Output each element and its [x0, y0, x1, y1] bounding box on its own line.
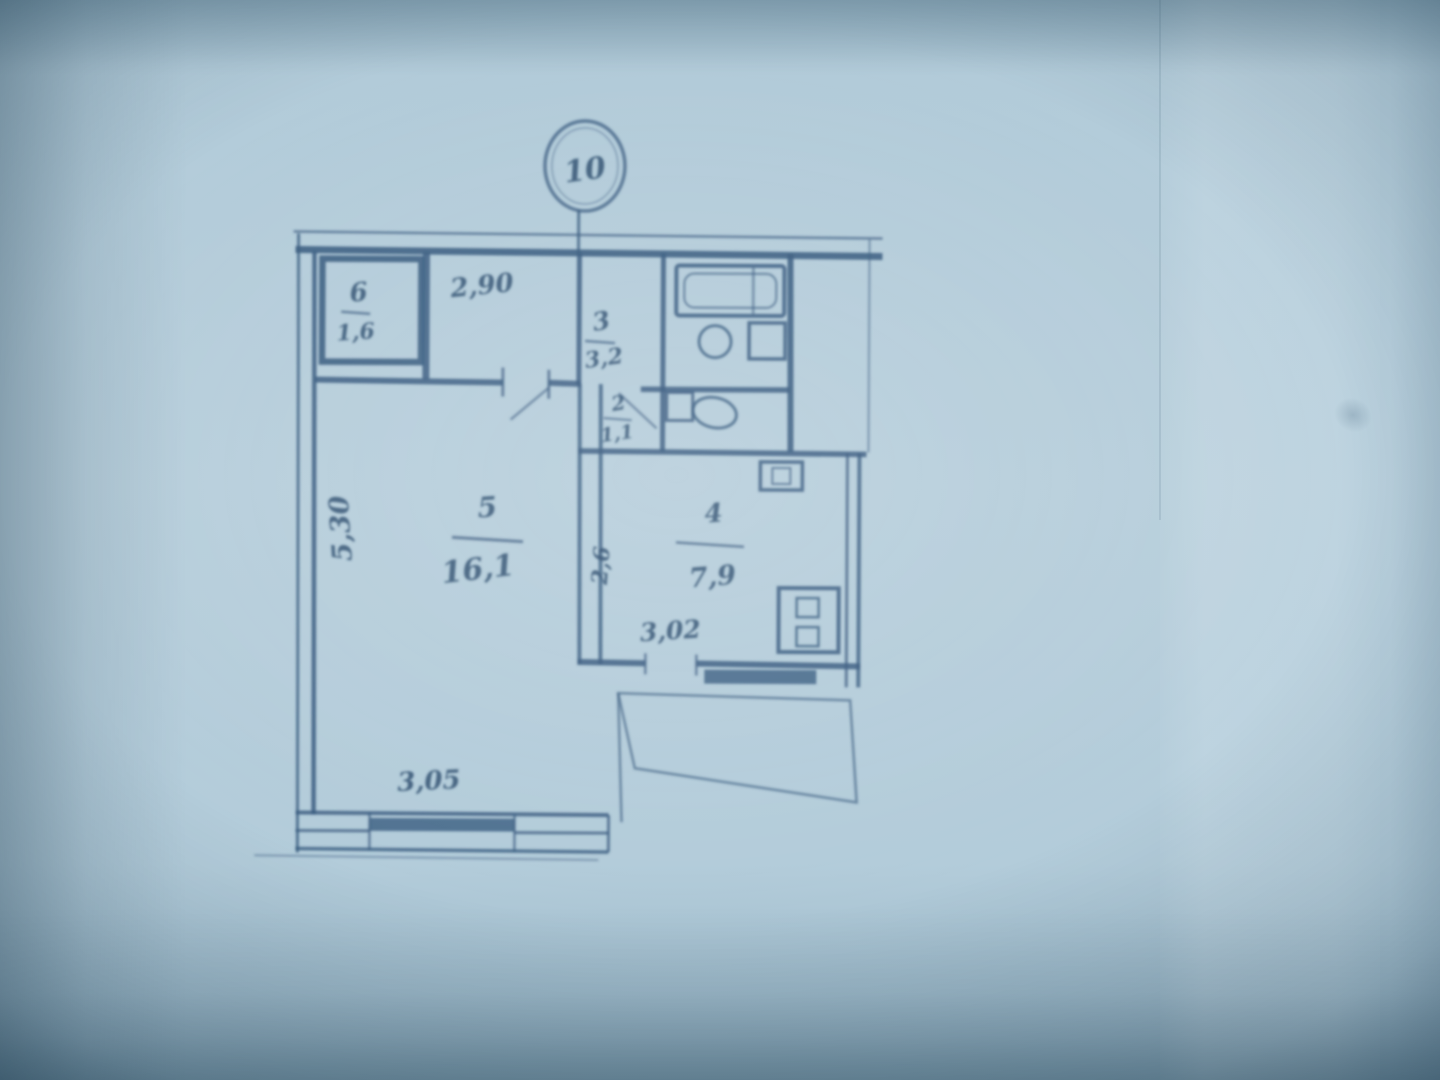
wall: [296, 812, 609, 815]
wall: [295, 848, 608, 852]
living-area: 16,1: [440, 548, 517, 591]
wall: [294, 231, 883, 238]
wall: [789, 254, 791, 452]
kitchen-area: 7,9: [688, 560, 738, 595]
stove-burner: [797, 598, 819, 617]
stove-burner: [796, 627, 818, 646]
toilet-area: 1,1: [599, 421, 635, 447]
living-width-dim: 3,05: [397, 765, 462, 798]
corridor-area: 3,2: [583, 343, 624, 374]
closet-area: 1,6: [336, 318, 376, 346]
corridor-number: 3: [590, 305, 612, 337]
kitchen-sink: [760, 462, 802, 490]
kitchen-depth-dim: 2,6: [587, 545, 616, 586]
kitchen-number: 4: [704, 498, 724, 529]
floor-plan-photo: 10 6 1,6 2,90 3 3,2 2 1,1 5 16,1 5,30 3,…: [0, 0, 1440, 1080]
kitchen-window: [704, 670, 816, 685]
wall: [696, 664, 860, 667]
fraction-bar: [604, 418, 632, 420]
fraction-bar: [585, 341, 615, 343]
closet-number: 6: [348, 277, 368, 308]
living-window: [369, 818, 514, 832]
wall: [662, 253, 663, 451]
bathtub-inner: [684, 273, 776, 307]
fraction-bar: [341, 312, 370, 314]
toilet-bowl: [690, 393, 739, 432]
wall: [315, 380, 503, 383]
floor-plan-drawing: 10 6 1,6 2,90 3 3,2 2 1,1 5 16,1 5,30 3,…: [0, 0, 1440, 1080]
living-depth-dim: 5,30: [324, 494, 359, 562]
wall: [578, 451, 866, 455]
plan-labels: 10 6 1,6 2,90 3 3,2 2 1,1 5 16,1 5,30 3,…: [322, 149, 740, 800]
wall: [295, 233, 300, 852]
wall: [868, 239, 869, 452]
wall: [549, 383, 581, 384]
wall: [577, 662, 645, 663]
wall: [295, 249, 882, 256]
riser-number: 10: [562, 150, 608, 190]
wall: [641, 389, 790, 390]
kitchen-sink-basin: [772, 468, 790, 484]
sink-unit: [749, 323, 785, 359]
wall: [846, 453, 847, 687]
wall: [426, 252, 427, 379]
hall-width-dim: 2,90: [448, 268, 515, 304]
balcony-railing: [618, 693, 858, 802]
fraction-bar: [452, 537, 523, 541]
wall: [312, 252, 317, 815]
fraction-bar: [676, 542, 744, 546]
living-number: 5: [476, 490, 498, 524]
wall: [579, 253, 580, 384]
door-leaf: [511, 388, 549, 420]
wall: [578, 384, 580, 664]
neighbor-wall-line: [254, 855, 598, 860]
wall: [858, 453, 859, 687]
toilet-number: 2: [608, 390, 627, 416]
kitchen-width-dim: 3,02: [639, 614, 702, 647]
toilet-cistern: [667, 392, 693, 420]
plan-ink-layer: 10 6 1,6 2,90 3 3,2 2 1,1 5 16,1 5,30 3,…: [254, 119, 883, 861]
washbasin: [699, 326, 731, 358]
